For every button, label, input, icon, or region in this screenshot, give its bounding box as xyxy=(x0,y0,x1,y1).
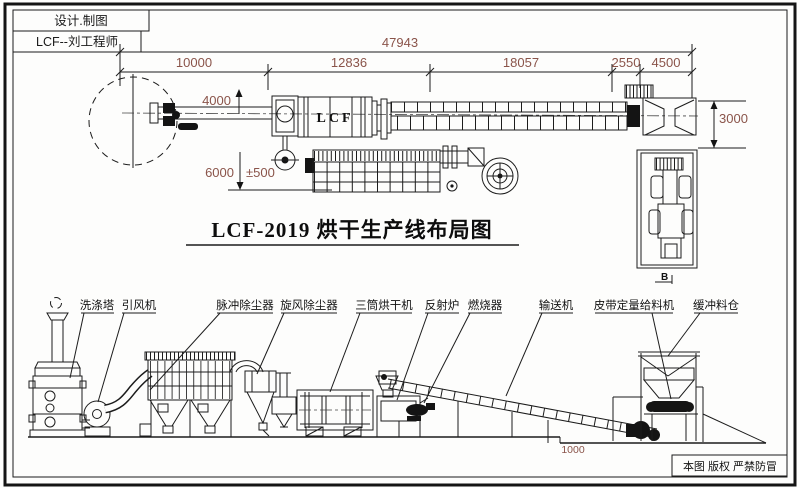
label-conveyor: 输送机 xyxy=(539,298,574,312)
label-burner: 燃烧器 xyxy=(468,298,503,312)
dim-seg2: 12836 xyxy=(331,55,367,70)
lcf-drum-plan: LCF xyxy=(298,97,372,137)
label-reflection-furnace: 反射炉 xyxy=(425,298,460,312)
label-belt-feeder: 皮带定量给料机 xyxy=(594,298,675,312)
equipment-labels: 洗涤塔 引风机 脉冲除尘器 旋风除尘器 三筒烘干机 反射炉 燃烧器 输送机 皮带… xyxy=(70,298,739,403)
hopper-plan xyxy=(643,98,696,135)
layout-drawing: 设计.制图 LCF--刘工程师 47943 10000 12836 18057 … xyxy=(0,0,800,488)
label-cyclone-dust-collector: 旋风除尘器 xyxy=(280,298,338,312)
feeder-enclosure-plan xyxy=(637,150,697,268)
triple-drum-dryer xyxy=(297,390,373,436)
dim-tolerance: ±500 xyxy=(246,165,275,180)
dim-feed-height: 4000 xyxy=(202,93,231,108)
svg-text:B: B xyxy=(661,272,668,283)
label-triple-drum-dryer: 三筒烘干机 xyxy=(355,298,413,312)
copyright-text: 本图 版权 严禁防冒 xyxy=(683,459,777,473)
ladder-plan xyxy=(625,85,653,98)
drawing-sheet: 设计.制图 LCF--刘工程师 47943 10000 12836 18057 … xyxy=(0,0,800,488)
drum-label: LCF xyxy=(317,111,354,126)
dim-hopper-height: 3000 xyxy=(719,111,748,126)
dim-seg5: 4500 xyxy=(652,55,681,70)
plan-view: LCF xyxy=(89,74,698,284)
label-induced-draft-fan: 引风机 xyxy=(122,298,157,312)
dim-seg4: 2550 xyxy=(612,55,641,70)
dim-total: 47943 xyxy=(382,35,418,50)
label-washing-tower: 洗涤塔 xyxy=(80,298,115,312)
dimension-chain: 47943 10000 12836 18057 2550 4500 xyxy=(116,35,696,98)
dimension-heights: 4000 6000 ±500 3000 xyxy=(202,89,748,190)
cyclone-dust-collector xyxy=(230,361,296,436)
washing-tower xyxy=(29,298,86,438)
pulse-dust-collector xyxy=(140,352,235,437)
page-title: LCF-2019 烘干生产线布局图 xyxy=(211,218,492,242)
section-mark: B xyxy=(655,272,672,284)
dim-seg3: 18057 xyxy=(503,55,539,70)
drawing-title: LCF-2019 烘干生产线布局图 xyxy=(186,218,519,245)
dim-dryer-height: 6000 xyxy=(205,165,234,180)
belt-feeder xyxy=(644,401,698,441)
label-pulse-dust-collector: 脉冲除尘器 xyxy=(216,298,274,312)
dim-seg1: 10000 xyxy=(176,55,212,70)
title-block: 设计.制图 LCF--刘工程师 xyxy=(13,10,149,52)
design-label: 设计.制图 xyxy=(54,13,107,28)
dim-ground-step: 1000 xyxy=(561,444,585,456)
dust-collector-plan xyxy=(305,150,457,192)
label-buffer-bin: 缓冲料仓 xyxy=(693,298,739,312)
engineer-label: LCF--刘工程师 xyxy=(36,34,118,49)
conveyor-drive xyxy=(626,421,660,441)
conveyor-plan xyxy=(391,102,627,130)
copyright-box: 本图 版权 严禁防冒 xyxy=(672,455,787,476)
elevation-view: 1000 xyxy=(28,298,766,457)
